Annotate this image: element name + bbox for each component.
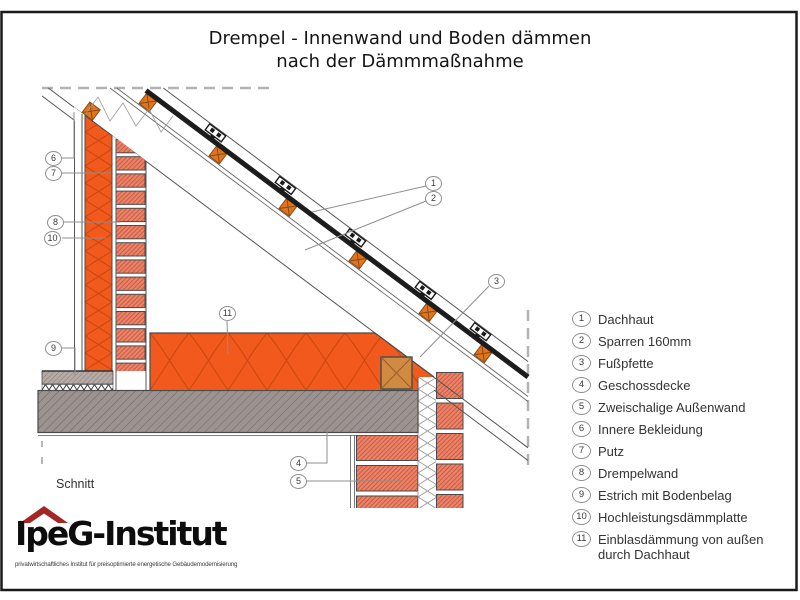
logo-wordmark: IpeG-Institut bbox=[15, 514, 226, 553]
legend-label: Fußpfette bbox=[598, 355, 654, 371]
callout-2: 2 bbox=[425, 191, 442, 206]
callout-11: 11 bbox=[219, 306, 236, 321]
legend-label: Sparren 160mm bbox=[598, 333, 691, 349]
legend-label: Geschossdecke bbox=[598, 377, 691, 393]
legend-item: 7Putz bbox=[572, 443, 794, 459]
legend-number: 9 bbox=[572, 487, 591, 503]
legend-number: 2 bbox=[572, 333, 591, 349]
legend-item: 2Sparren 160mm bbox=[572, 333, 794, 349]
legend-number: 4 bbox=[572, 377, 591, 393]
legend-item: 11Einblasdämmung von außen durch Dachhau… bbox=[572, 531, 794, 562]
legend-item: 10Hochleistungsdämmplatte bbox=[572, 509, 794, 525]
legend-number: 7 bbox=[572, 443, 591, 459]
legend-item: 6Innere Bekleidung bbox=[572, 421, 794, 437]
legend-item: 3Fußpfette bbox=[572, 355, 794, 371]
inner-leaf-bricks bbox=[356, 435, 418, 508]
legend-number: 11 bbox=[572, 531, 591, 547]
callout-8: 8 bbox=[47, 215, 64, 230]
legend-label: Putz bbox=[598, 443, 624, 459]
legend-item: 8Drempelwand bbox=[572, 465, 794, 481]
legend: 1Dachhaut 2Sparren 160mm 3Fußpfette 4Ges… bbox=[572, 311, 794, 568]
legend-item: 5Zweischalige Außenwand bbox=[572, 399, 794, 415]
legend-number: 10 bbox=[572, 509, 591, 525]
callout-4: 4 bbox=[290, 456, 307, 471]
title-line-1: Drempel - Innenwand und Boden dämmen bbox=[0, 27, 800, 50]
callout-7: 7 bbox=[45, 166, 62, 181]
roof-seam-clamps bbox=[203, 124, 491, 344]
outer-leaf-bricks bbox=[436, 372, 464, 508]
callout-3: 3 bbox=[488, 274, 505, 289]
legend-label: Dachhaut bbox=[598, 311, 654, 327]
legend-number: 8 bbox=[572, 465, 591, 481]
callout-10: 10 bbox=[44, 231, 61, 246]
legend-label: Estrich mit Bodenbelag bbox=[598, 487, 732, 503]
legend-number: 5 bbox=[572, 399, 591, 415]
impact-sound-layer bbox=[42, 385, 113, 391]
callout-9: 9 bbox=[45, 341, 62, 356]
callout-1: 1 bbox=[425, 176, 442, 191]
legend-number: 1 bbox=[572, 311, 591, 327]
drawing-title: Drempel - Innenwand und Boden dämmen nac… bbox=[0, 27, 800, 73]
legend-item: 9Estrich mit Bodenbelag bbox=[572, 487, 794, 503]
cavity-insulation bbox=[418, 365, 436, 508]
callout-5: 5 bbox=[290, 474, 307, 489]
page: Drempel - Innenwand und Boden dämmen nac… bbox=[0, 0, 800, 600]
logo-tagline: privatwirtschaftliches Institut für prei… bbox=[15, 561, 237, 568]
legend-number: 6 bbox=[572, 421, 591, 437]
title-line-2: nach der Dämmmaßnahme bbox=[0, 50, 800, 73]
legend-label: Hochleistungsdämmplatte bbox=[598, 509, 748, 525]
knee-wall-group bbox=[74, 107, 146, 390]
legend-label: Zweischalige Außenwand bbox=[598, 399, 745, 415]
inner-lining-line bbox=[42, 96, 75, 120]
legend-label: Drempelwand bbox=[598, 465, 678, 481]
knee-wall-bricks bbox=[116, 138, 146, 371]
legend-label: Innere Bekleidung bbox=[598, 421, 703, 437]
callout-6: 6 bbox=[45, 151, 62, 166]
legend-label: Einblasdämmung von außen durch Dachhaut bbox=[598, 531, 794, 562]
blown-insulation-group bbox=[150, 333, 434, 390]
section-label: Schnitt bbox=[56, 477, 94, 491]
legend-item: 1Dachhaut bbox=[572, 311, 794, 327]
legend-item: 4Geschossdecke bbox=[572, 377, 794, 393]
legend-number: 3 bbox=[572, 355, 591, 371]
